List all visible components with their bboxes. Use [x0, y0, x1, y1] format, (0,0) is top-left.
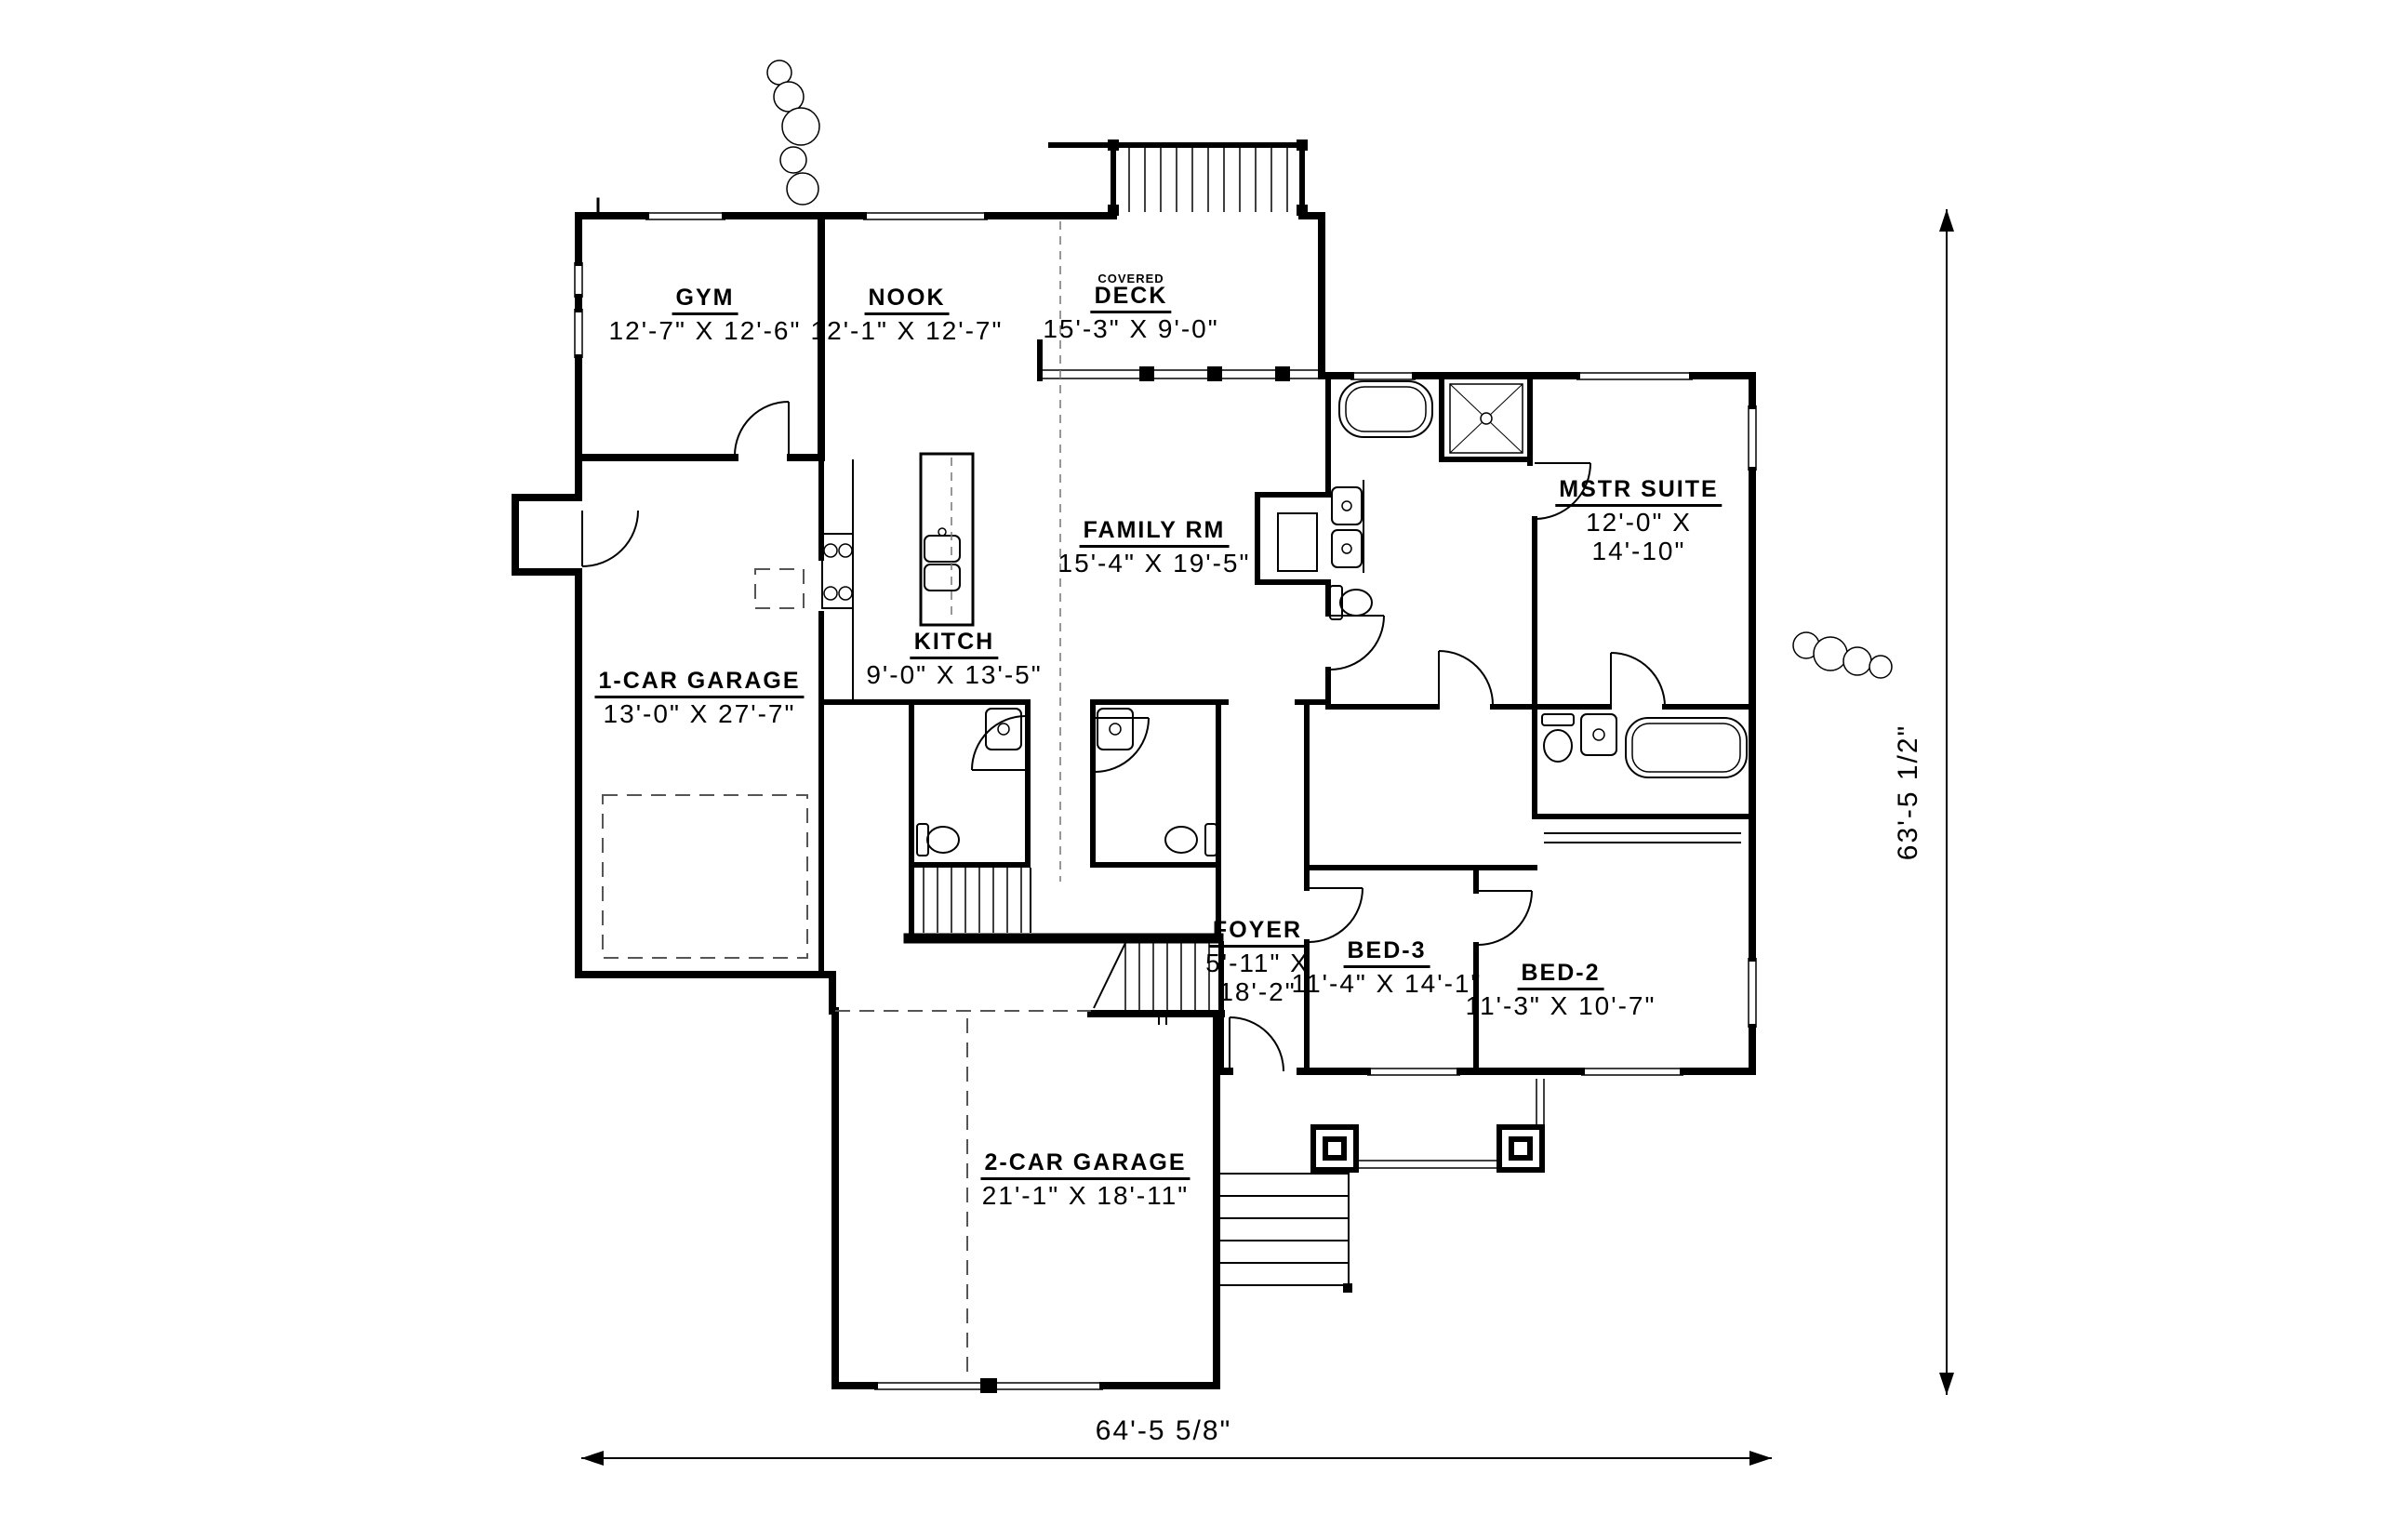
room-label-bed-2: BED-2 11'-3" X 10'-7" [1466, 960, 1656, 1019]
fireplace [1278, 513, 1317, 571]
main-bath-toilet [1542, 714, 1574, 762]
kitchen-island [921, 454, 973, 625]
bed2-closet-doors [1544, 833, 1741, 843]
room-name: DECK [1091, 283, 1172, 313]
room-name: FAMILY RM [1080, 517, 1230, 548]
deck-and-stairs [1040, 139, 1322, 381]
floor-plan-drawing [0, 0, 2381, 1540]
room-dimensions: 15'-3" X 9'-0" [1043, 315, 1218, 342]
room-label-family-rm: FAMILY RM 15'-4" X 19'-5" [1058, 517, 1251, 577]
room-dimensions: 15'-4" X 19'-5" [1058, 550, 1251, 577]
master-toilet [1330, 586, 1372, 619]
room-dimensions: 11'-3" X 10'-7" [1466, 992, 1656, 1019]
bath-b-fixtures [1097, 709, 1217, 856]
main-bath-sink [1581, 714, 1616, 755]
room-name: KITCH [911, 629, 998, 659]
room-label-gym: GYM 12'-7" X 12'-6" [609, 285, 802, 344]
room-name: BED-3 [1343, 937, 1430, 968]
interior-stairs [924, 868, 1209, 1025]
room-dimensions: 13'-0" X 27'-7" [594, 700, 804, 727]
master-tub [1339, 381, 1432, 437]
windows [575, 213, 1756, 1393]
room-dimensions-line2: 14'-10" [1555, 538, 1722, 564]
room-dimensions: 12'-1" X 12'-7" [811, 317, 1004, 344]
room-label-two-car-garage: 2-CAR GARAGE 21'-1" X 18'-11" [980, 1149, 1190, 1209]
room-name: 2-CAR GARAGE [980, 1149, 1190, 1180]
room-name: MSTR SUITE [1555, 476, 1722, 507]
room-dimensions: 12'-7" X 12'-6" [609, 317, 802, 344]
room-dimensions-line1: 12'-0" X [1555, 509, 1722, 536]
room-label-bed-3: BED-3 11'-4" X 14'-1" [1292, 937, 1483, 997]
room-label-mstr-suite: MSTR SUITE 12'-0" X 14'-10" [1555, 476, 1722, 565]
room-name: NOOK [864, 285, 949, 315]
room-label-covered-deck: COVERED DECK 15'-3" X 9'-0" [1043, 272, 1218, 342]
fixtures [822, 381, 1747, 856]
room-label-one-car-garage: 1-CAR GARAGE 13'-0" X 27'-7" [594, 668, 804, 727]
porch [1217, 1079, 1544, 1293]
dimension-arrows [581, 209, 1954, 1466]
porch-steps [1217, 1170, 1352, 1293]
room-label-nook: NOOK 12'-1" X 12'-7" [811, 285, 1004, 344]
room-name: 1-CAR GARAGE [594, 668, 804, 698]
master-vanity-sinks [1332, 480, 1363, 573]
overall-height-dimension: 63'-5 1/2" [1893, 724, 1924, 860]
bath-a-fixtures [917, 709, 1021, 856]
room-dimensions: 21'-1" X 18'-11" [980, 1182, 1190, 1209]
main-bath-tub [1626, 718, 1747, 777]
room-dimensions: 11'-4" X 14'-1" [1292, 970, 1483, 997]
room-name: GYM [672, 285, 738, 315]
room-dimensions: 9'-0" X 13'-5" [866, 661, 1042, 688]
floor-plan-sheet: GYM 12'-7" X 12'-6" NOOK 12'-1" X 12'-7"… [0, 0, 2381, 1540]
overall-width-dimension: 64'-5 5/8" [1096, 1415, 1231, 1447]
room-name: BED-2 [1517, 960, 1603, 990]
kitchen-range [822, 459, 853, 700]
room-label-kitch: KITCH 9'-0" X 13'-5" [866, 629, 1042, 688]
master-shower [1450, 384, 1523, 453]
